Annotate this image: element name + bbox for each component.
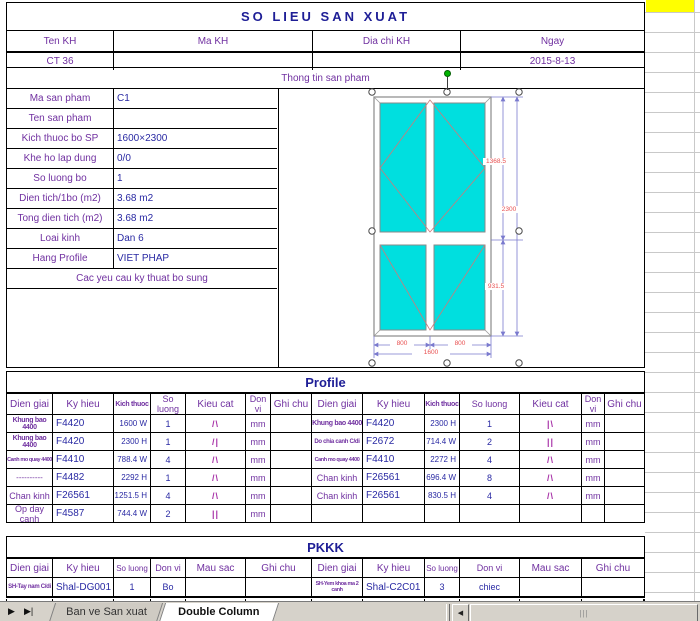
dien-giai-cell[interactable]: ---------- bbox=[7, 469, 53, 487]
info-value[interactable]: 1 bbox=[114, 169, 277, 189]
ky-hieu-cell[interactable]: F26561 bbox=[363, 469, 425, 487]
so-luong-cell[interactable]: 1 bbox=[114, 578, 151, 597]
ky-hieu-cell[interactable]: F4420 bbox=[363, 415, 425, 433]
info-value[interactable]: 1600×2300 bbox=[114, 129, 277, 149]
profile-header[interactable]: Ky hieu bbox=[363, 394, 425, 415]
info-value[interactable]: Dan 6 bbox=[114, 229, 277, 249]
don-vi-cell[interactable]: mm bbox=[246, 415, 271, 433]
ky-hieu-cell[interactable]: F4420 bbox=[53, 433, 114, 451]
so-luong-cell[interactable]: 4 bbox=[151, 451, 186, 469]
pkkk-header[interactable]: So luong bbox=[425, 559, 460, 578]
section-label-thong-tin: Thong tin san pham bbox=[6, 68, 645, 88]
mau-sac-cell[interactable] bbox=[520, 578, 582, 597]
ghi-chu-cell[interactable] bbox=[271, 505, 312, 523]
dien-giai-cell[interactable]: Khung bao 4400 bbox=[7, 415, 53, 433]
pkkk-header[interactable]: Ghi chu bbox=[246, 559, 312, 578]
don-vi-cell[interactable]: mm bbox=[246, 451, 271, 469]
dien-giai-cell[interactable]: SH-Tay nam C/di bbox=[7, 578, 53, 597]
ky-hieu-cell[interactable]: F4420 bbox=[53, 415, 114, 433]
header-ngay[interactable]: Ngay bbox=[461, 31, 644, 51]
kieu-cat-cell[interactable]: /| bbox=[186, 433, 246, 451]
profile-header[interactable]: Dien giai bbox=[7, 394, 53, 415]
rotation-handle[interactable] bbox=[444, 70, 451, 77]
info-value[interactable]: 3.68 m2 bbox=[114, 209, 277, 229]
don-vi-cell[interactable] bbox=[582, 505, 605, 523]
info-label[interactable]: Tong dien tich (m2) bbox=[7, 209, 114, 229]
dien-giai-cell[interactable]: Khung bao 4400 bbox=[7, 433, 53, 451]
customer-header-row: Ten KH Ma KH Dia chi KH Ngay bbox=[7, 31, 644, 53]
profile-section-title: Profile bbox=[6, 371, 645, 393]
scroll-left-icon: ◀ bbox=[458, 609, 463, 617]
header-dia-chi-kh[interactable]: Dia chi KH bbox=[313, 31, 461, 51]
product-info-table: Ma san pham C1 Ten san pham Kich thuoc b… bbox=[7, 89, 279, 367]
pkkk-table: Dien giai Ky hieu So luong Don vi Mau sa… bbox=[6, 558, 645, 598]
info-label[interactable]: Ten san pham bbox=[7, 109, 114, 129]
info-label[interactable]: Kich thuoc bo SP bbox=[7, 129, 114, 149]
kieu-cat-cell[interactable]: |\ bbox=[520, 415, 582, 433]
pkkk-header[interactable]: So luong bbox=[114, 559, 151, 578]
pkkk-header[interactable]: Dien giai bbox=[312, 559, 363, 578]
don-vi-cell[interactable]: mm bbox=[246, 505, 271, 523]
kich-thuoc-cell[interactable]: 830.5 H bbox=[425, 487, 460, 505]
profile-header[interactable]: Ghi chu bbox=[271, 394, 312, 415]
profile-header[interactable]: Don vi bbox=[582, 394, 605, 415]
ghi-chu-cell[interactable] bbox=[271, 433, 312, 451]
so-luong-cell[interactable]: 1 bbox=[151, 415, 186, 433]
kich-thuoc-cell[interactable]: 696.4 W bbox=[425, 469, 460, 487]
info-value[interactable]: 3.68 m2 bbox=[114, 189, 277, 209]
kieu-cat-cell[interactable]: /\ bbox=[186, 451, 246, 469]
ghi-chu-cell[interactable] bbox=[582, 578, 644, 597]
ky-hieu-cell[interactable]: Shal-DG001 bbox=[53, 578, 114, 597]
info-value[interactable]: 0/0 bbox=[114, 149, 277, 169]
highlighted-cell[interactable] bbox=[646, 0, 694, 12]
info-value[interactable]: C1 bbox=[114, 89, 277, 109]
so-luong-cell[interactable]: 1 bbox=[151, 433, 186, 451]
kieu-cat-cell[interactable]: || bbox=[186, 505, 246, 523]
profile-header[interactable]: So luong bbox=[460, 394, 520, 415]
glass-upper-right bbox=[434, 103, 485, 232]
kich-thuoc-cell[interactable]: 1251.5 H bbox=[114, 487, 151, 505]
don-vi-cell[interactable]: mm bbox=[246, 487, 271, 505]
tab-ban-ve-san-xuat[interactable]: Ban ve San xuat bbox=[49, 603, 163, 621]
so-luong-cell[interactable]: 4 bbox=[460, 487, 520, 505]
dim-total-width: 1600 bbox=[412, 349, 450, 356]
ghi-chu-cell[interactable] bbox=[605, 433, 644, 451]
don-vi-cell[interactable]: mm bbox=[582, 469, 605, 487]
kich-thuoc-cell[interactable]: 788.4 W bbox=[114, 451, 151, 469]
dim-lower-height: 931.5 bbox=[485, 283, 507, 290]
so-luong-cell[interactable]: 4 bbox=[151, 487, 186, 505]
dim-right-width: 800 bbox=[448, 340, 472, 347]
so-luong-cell[interactable]: 4 bbox=[460, 451, 520, 469]
kieu-cat-cell[interactable]: /\ bbox=[520, 487, 582, 505]
ky-hieu-cell[interactable]: F4482 bbox=[53, 469, 114, 487]
pkkk-section-title: PKKK bbox=[6, 536, 645, 558]
dien-giai-cell[interactable]: Op day canh bbox=[7, 505, 53, 523]
ky-hieu-cell[interactable]: F4410 bbox=[363, 451, 425, 469]
profile-header[interactable]: Kieu cat bbox=[520, 394, 582, 415]
customer-table: SO LIEU SAN XUAT Ten KH Ma KH Dia chi KH… bbox=[6, 2, 645, 68]
don-vi-cell[interactable]: mm bbox=[582, 415, 605, 433]
next-sheet-icon[interactable]: ▶ bbox=[8, 606, 15, 617]
kich-thuoc-cell[interactable] bbox=[425, 505, 460, 523]
mau-sac-cell[interactable] bbox=[186, 578, 246, 597]
kich-thuoc-cell[interactable]: 714.4 W bbox=[425, 433, 460, 451]
dien-giai-cell[interactable]: Chan kinh bbox=[312, 487, 363, 505]
pkkk-header[interactable]: Ky hieu bbox=[53, 559, 114, 578]
sheet-tab-bar: ▶ ▶| Ban ve San xuat Double Column ◀ ||| bbox=[0, 601, 700, 621]
glass-lower-right bbox=[434, 245, 485, 330]
so-luong-cell[interactable]: 2 bbox=[460, 433, 520, 451]
ky-hieu-cell[interactable]: F2672 bbox=[363, 433, 425, 451]
empty-grid-area bbox=[645, 0, 700, 601]
info-label[interactable]: So luong bo bbox=[7, 169, 114, 189]
dim-total-height: 2300 bbox=[499, 206, 519, 213]
dien-giai-cell[interactable]: Canh mo quay 4400 bbox=[312, 451, 363, 469]
ghi-chu-cell[interactable] bbox=[271, 469, 312, 487]
kich-thuoc-cell[interactable]: 2272 H bbox=[425, 451, 460, 469]
ky-hieu-cell[interactable]: F26561 bbox=[53, 487, 114, 505]
kieu-cat-cell[interactable]: /\ bbox=[186, 415, 246, 433]
dien-giai-cell[interactable]: Canh mo quay 4400 bbox=[7, 451, 53, 469]
dim-upper-height: 1368.5 bbox=[483, 158, 509, 165]
profile-header[interactable]: Don vi bbox=[246, 394, 271, 415]
kich-thuoc-cell[interactable]: 2300 H bbox=[114, 433, 151, 451]
door-drawing bbox=[277, 88, 645, 375]
dien-giai-cell[interactable]: Khung bao 4400 bbox=[312, 415, 363, 433]
kieu-cat-cell[interactable]: /\ bbox=[520, 451, 582, 469]
profile-header[interactable]: Ghi chu bbox=[605, 394, 644, 415]
info-value[interactable] bbox=[114, 109, 277, 129]
pkkk-header[interactable]: Mau sac bbox=[520, 559, 582, 578]
don-vi-cell[interactable]: mm bbox=[246, 433, 271, 451]
tab-scroll-splitter[interactable] bbox=[446, 604, 450, 621]
kieu-cat-cell[interactable] bbox=[520, 505, 582, 523]
ky-hieu-cell[interactable]: F4410 bbox=[53, 451, 114, 469]
don-vi-cell[interactable]: chiec bbox=[460, 578, 520, 597]
kich-thuoc-cell[interactable]: 744.4 W bbox=[114, 505, 151, 523]
kich-thuoc-cell[interactable]: 2292 H bbox=[114, 469, 151, 487]
ky-hieu-cell[interactable]: F4587 bbox=[53, 505, 114, 523]
pkkk-header[interactable]: Dien giai bbox=[7, 559, 53, 578]
so-luong-cell[interactable]: 3 bbox=[425, 578, 460, 597]
kieu-cat-cell[interactable]: || bbox=[520, 433, 582, 451]
page-title: SO LIEU SAN XUAT bbox=[7, 3, 644, 31]
so-luong-cell[interactable]: 1 bbox=[151, 469, 186, 487]
header-ma-kh[interactable]: Ma KH bbox=[114, 31, 313, 51]
kich-thuoc-cell[interactable]: 2300 H bbox=[425, 415, 460, 433]
ghi-chu-cell[interactable] bbox=[605, 505, 644, 523]
ghi-chu-cell[interactable] bbox=[271, 487, 312, 505]
kieu-cat-cell[interactable]: /\ bbox=[520, 469, 582, 487]
so-luong-cell[interactable]: 2 bbox=[151, 505, 186, 523]
scroll-left-button[interactable]: ◀ bbox=[452, 604, 469, 621]
pkkk-header[interactable]: Don vi bbox=[151, 559, 186, 578]
info-label[interactable]: Loai kinh bbox=[7, 229, 114, 249]
so-luong-cell[interactable]: 1 bbox=[460, 415, 520, 433]
ghi-chu-cell[interactable] bbox=[605, 451, 644, 469]
horizontal-scrollbar-thumb[interactable]: ||| bbox=[470, 604, 698, 621]
dien-giai-cell[interactable]: SH-Yem khoa ma 2 canh bbox=[312, 578, 363, 597]
ky-hieu-cell[interactable]: Shal-C2C01 bbox=[363, 578, 425, 597]
dien-giai-cell[interactable]: Chan kinh bbox=[7, 487, 53, 505]
profile-header[interactable]: Kich thuoc bbox=[425, 394, 460, 415]
ghi-chu-cell[interactable] bbox=[246, 578, 312, 597]
kich-thuoc-cell[interactable]: 1600 W bbox=[114, 415, 151, 433]
so-luong-cell[interactable]: 8 bbox=[460, 469, 520, 487]
glass-upper-left bbox=[380, 103, 426, 232]
dim-left-width: 800 bbox=[390, 340, 414, 347]
ghi-chu-cell[interactable] bbox=[271, 415, 312, 433]
glass-lower-left bbox=[380, 245, 426, 330]
info-label[interactable]: Khe ho lap dung bbox=[7, 149, 114, 169]
profile-header[interactable]: So luong bbox=[151, 394, 186, 415]
rotation-handle-stem bbox=[447, 77, 448, 90]
thumb-grip-icon: ||| bbox=[579, 609, 588, 618]
info-footer-note[interactable]: Cac yeu cau ky thuat bo sung bbox=[7, 269, 277, 289]
don-vi-cell[interactable]: mm bbox=[246, 469, 271, 487]
profile-header[interactable]: Kieu cat bbox=[186, 394, 246, 415]
ghi-chu-cell[interactable] bbox=[605, 487, 644, 505]
pkkk-header[interactable]: Don vi bbox=[460, 559, 520, 578]
profile-header[interactable]: Dien giai bbox=[312, 394, 363, 415]
pkkk-header[interactable]: Ghi chu bbox=[582, 559, 644, 578]
ghi-chu-cell[interactable] bbox=[271, 451, 312, 469]
pkkk-header[interactable]: Mau sac bbox=[186, 559, 246, 578]
grid-line bbox=[694, 0, 695, 601]
tab-double-column[interactable]: Double Column bbox=[159, 603, 279, 621]
dien-giai-cell[interactable]: Chan kinh bbox=[312, 469, 363, 487]
profile-header[interactable]: Kich thuoc bbox=[114, 394, 151, 415]
profile-table: Dien giai Ky hieu Kich thuoc So luong Ki… bbox=[6, 393, 645, 523]
info-value[interactable]: VIET PHAP bbox=[114, 249, 277, 269]
don-vi-cell[interactable]: Bo bbox=[151, 578, 186, 597]
info-label[interactable]: Ma san pham bbox=[7, 89, 114, 109]
last-sheet-icon[interactable]: ▶| bbox=[24, 606, 33, 617]
profile-header[interactable]: Ky hieu bbox=[53, 394, 114, 415]
ghi-chu-cell[interactable] bbox=[605, 415, 644, 433]
dien-giai-cell[interactable]: Do chia canh C/di bbox=[312, 433, 363, 451]
ghi-chu-cell[interactable] bbox=[605, 469, 644, 487]
don-vi-cell[interactable]: mm bbox=[582, 433, 605, 451]
kieu-cat-cell[interactable]: /\ bbox=[186, 469, 246, 487]
spreadsheet-page: SO LIEU SAN XUAT Ten KH Ma KH Dia chi KH… bbox=[0, 0, 700, 621]
dien-giai-cell[interactable] bbox=[312, 505, 363, 523]
info-label[interactable]: Dien tich/1bo (m2) bbox=[7, 189, 114, 209]
don-vi-cell[interactable]: mm bbox=[582, 451, 605, 469]
info-label[interactable]: Hang Profile bbox=[7, 249, 114, 269]
so-luong-cell[interactable] bbox=[460, 505, 520, 523]
header-ten-kh[interactable]: Ten KH bbox=[7, 31, 114, 51]
don-vi-cell[interactable]: mm bbox=[582, 487, 605, 505]
ky-hieu-cell[interactable]: F26561 bbox=[363, 487, 425, 505]
ky-hieu-cell[interactable] bbox=[363, 505, 425, 523]
pkkk-header[interactable]: Ky hieu bbox=[363, 559, 425, 578]
kieu-cat-cell[interactable]: /\ bbox=[186, 487, 246, 505]
